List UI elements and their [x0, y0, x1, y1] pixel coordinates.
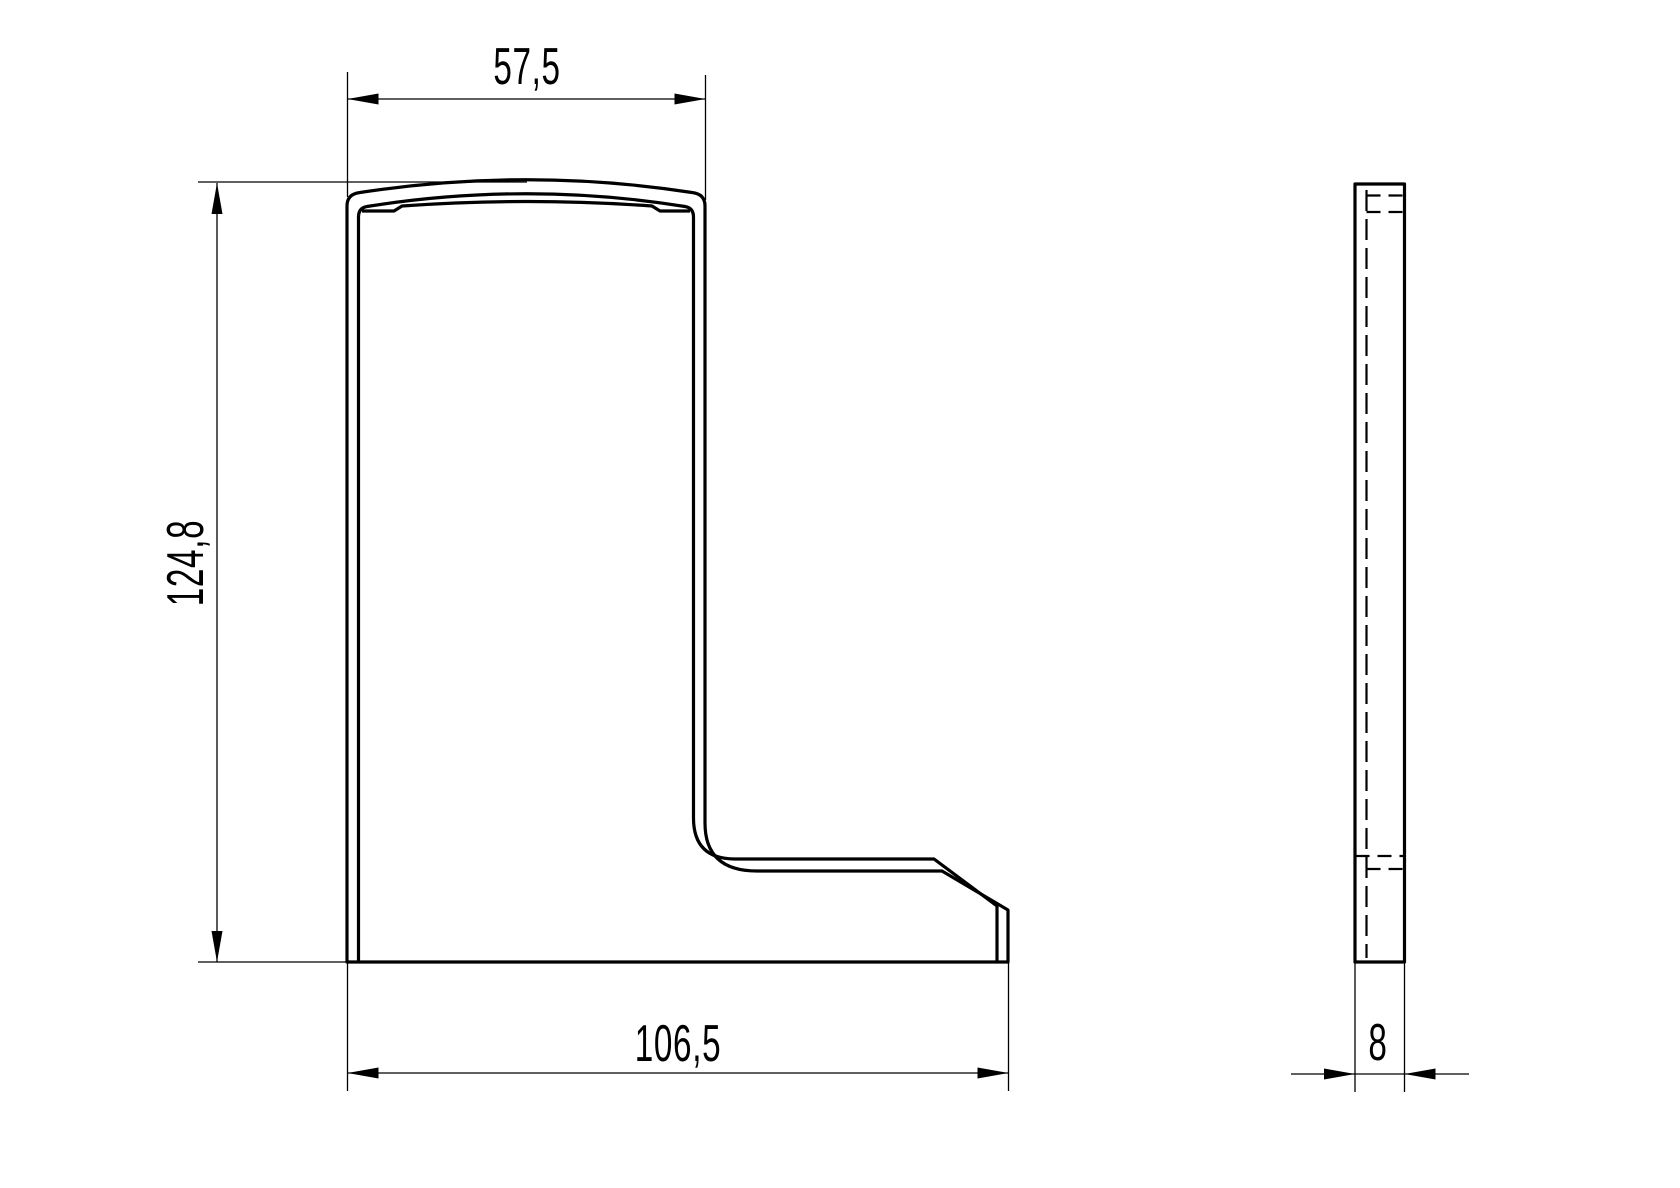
side-view-outline: [1355, 184, 1405, 962]
dimension-label-height: 124,8: [157, 520, 215, 606]
arrowhead-right: [1405, 1069, 1436, 1080]
arrowhead-left: [348, 94, 379, 105]
arrowhead-right: [978, 1068, 1009, 1079]
dimension-label-base-width: 106,5: [635, 1015, 721, 1073]
front-view: [347, 180, 1008, 962]
dimension-height: 124,8: [157, 182, 527, 962]
technical-drawing-canvas: 57,5 124,8 106,5 8: [0, 0, 1680, 1188]
dimension-label-top-width: 57,5: [493, 38, 560, 96]
inner-contour: [359, 194, 998, 962]
arrowhead-right: [675, 94, 706, 105]
side-view: [1355, 184, 1405, 962]
arrowhead-left: [1324, 1069, 1355, 1080]
arrowhead-left: [348, 1068, 379, 1079]
arrowhead-bottom: [212, 931, 223, 962]
arrowhead-top: [212, 183, 223, 214]
dimension-thickness: 8: [1291, 964, 1469, 1093]
outer-contour: [347, 180, 1008, 962]
inner-shelf-line: [362, 202, 690, 212]
dimension-base-width: 106,5: [348, 963, 1009, 1091]
dimension-label-thickness: 8: [1368, 1014, 1387, 1072]
dimension-top-width: 57,5: [348, 38, 706, 200]
